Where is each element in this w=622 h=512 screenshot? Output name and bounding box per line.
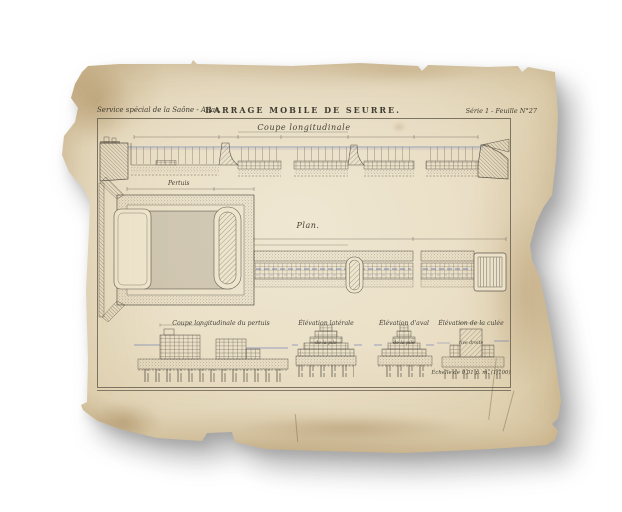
scan-background: Service spécial de la Saône - Atlas. BAR… (0, 0, 622, 512)
detail-subtitle: rive droite (459, 341, 483, 346)
sheet-header: Service spécial de la Saône - Atlas. BAR… (97, 104, 509, 118)
paper-stain (76, 396, 172, 448)
coupe-pertuis-detail-drawing (134, 324, 288, 383)
sheet-number: Série 1 - Feuille N°27 (466, 107, 537, 115)
detail-caption-coupe-pertuis: Coupe longitudinale du pertuis (161, 310, 281, 329)
paper-stain (210, 412, 490, 444)
paper-sheet: Service spécial de la Saône - Atlas. BAR… (60, 60, 568, 457)
plan-drawing (99, 177, 506, 322)
plan-title: Plan. (248, 221, 368, 230)
pertuis-label: Pertuis (168, 180, 189, 187)
detail-title: Coupe longitudinale du pertuis (172, 320, 269, 327)
coupe-longitudinale-drawing (100, 132, 509, 181)
sheet-title: BARRAGE MOBILE DE SEURRE. (97, 105, 509, 115)
detail-caption-elevation-culee: Élévation de la culée rive droite (411, 310, 531, 348)
paper-shadow-wrap: Service spécial de la Saône - Atlas. BAR… (60, 60, 568, 457)
scale-note: Échelle de 0,01 p. m. (1/100) (411, 370, 531, 376)
paper-stain (310, 56, 500, 86)
coupe-title: Coupe longitudinale (98, 123, 510, 132)
paper-crack (295, 414, 298, 442)
detail-title: Élévation de la culée (438, 320, 503, 327)
detail-subtitle: de la pile (315, 341, 336, 346)
drawing-frame: Coupe longitudinale Pertuis Plan. Coupe … (97, 118, 511, 388)
paper-crack (503, 391, 515, 432)
